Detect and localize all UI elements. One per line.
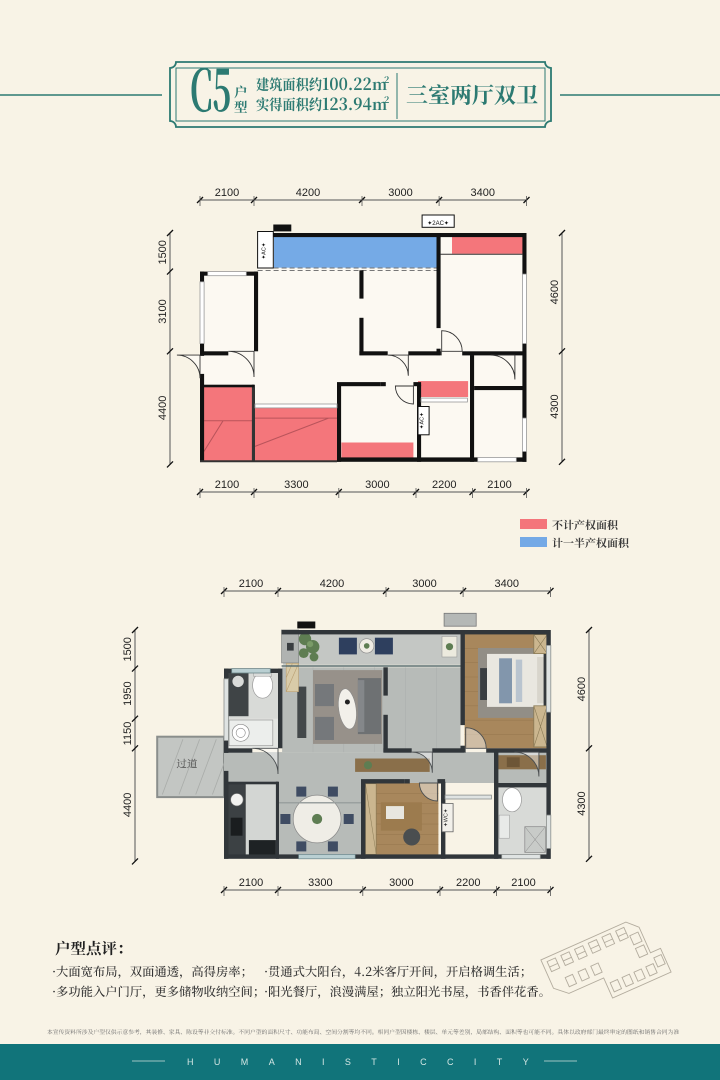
svg-text:4400: 4400 <box>122 793 134 817</box>
svg-text:3300: 3300 <box>284 479 308 491</box>
svg-text:4200: 4200 <box>320 578 344 590</box>
svg-text:2100: 2100 <box>215 187 239 199</box>
svg-text:1150: 1150 <box>122 722 134 746</box>
svg-text:1500: 1500 <box>122 637 134 661</box>
svg-text:3400: 3400 <box>495 578 519 590</box>
svg-text:3000: 3000 <box>389 877 413 889</box>
svg-text:3300: 3300 <box>308 877 332 889</box>
svg-text:2100: 2100 <box>239 578 263 590</box>
svg-text:1500: 1500 <box>157 240 169 264</box>
svg-text:2200: 2200 <box>456 877 480 889</box>
svg-text:2200: 2200 <box>432 479 456 491</box>
svg-text:✦AC✦: ✦AC✦ <box>260 242 267 259</box>
svg-text:4200: 4200 <box>296 187 320 199</box>
svg-text:4300: 4300 <box>576 791 588 815</box>
svg-text:2100: 2100 <box>487 479 511 491</box>
svg-text:✦WC✦: ✦WC✦ <box>443 808 450 827</box>
svg-text:✦2AC✦: ✦2AC✦ <box>427 220 449 227</box>
svg-text:3000: 3000 <box>412 578 436 590</box>
svg-text:3000: 3000 <box>365 479 389 491</box>
svg-text:4600: 4600 <box>549 280 561 304</box>
svg-text:4600: 4600 <box>576 677 588 701</box>
svg-text:2100: 2100 <box>511 877 535 889</box>
svg-text:2100: 2100 <box>239 877 263 889</box>
svg-text:4300: 4300 <box>549 394 561 418</box>
svg-text:1950: 1950 <box>122 681 134 705</box>
svg-text:3000: 3000 <box>388 187 412 199</box>
svg-text:3100: 3100 <box>157 299 169 323</box>
svg-text:HUMANISTICCITY: HUMANISTICCITY <box>187 1057 549 1067</box>
svg-text:✦AC✦: ✦AC✦ <box>419 412 426 429</box>
svg-text:4400: 4400 <box>157 396 169 420</box>
svg-text:3400: 3400 <box>471 187 495 199</box>
svg-text:2100: 2100 <box>215 479 239 491</box>
